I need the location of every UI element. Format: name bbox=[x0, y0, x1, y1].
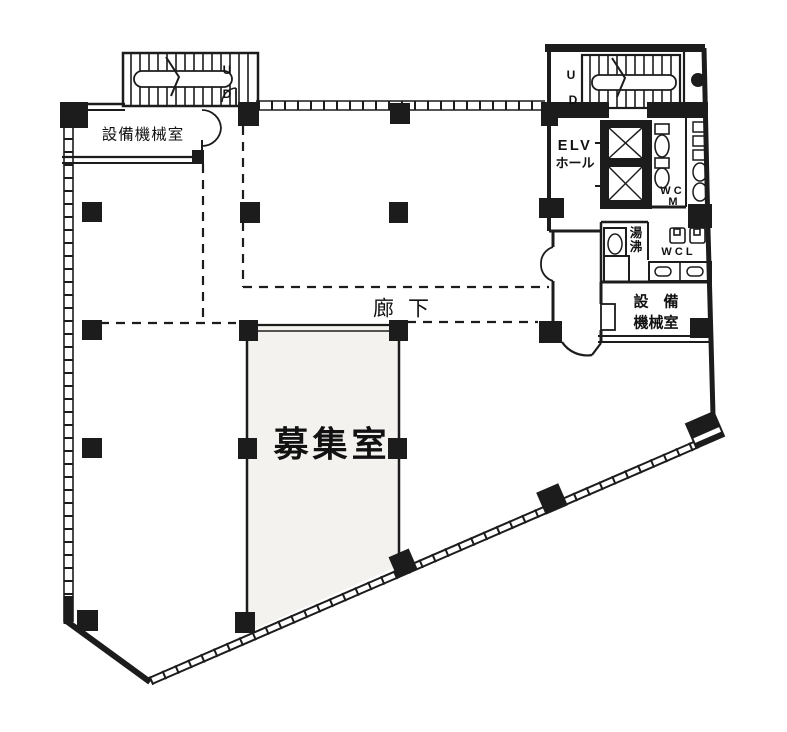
stair-top-right bbox=[552, 52, 708, 118]
column bbox=[235, 612, 255, 633]
stair-rail bbox=[592, 75, 676, 90]
stair-tl-down-label: D bbox=[223, 87, 232, 101]
column bbox=[539, 198, 564, 218]
floor-plan: U D 設備機械室 U D bbox=[0, 0, 787, 732]
toilet-stall-icon bbox=[690, 228, 705, 243]
wc-men bbox=[652, 118, 712, 228]
column bbox=[539, 321, 562, 343]
elv-hall-label-1: ELV bbox=[558, 138, 593, 154]
door-opening bbox=[601, 304, 615, 330]
equipment-room-r-label-1: 設 備 bbox=[633, 293, 678, 311]
counter bbox=[604, 256, 629, 282]
wc-ladies-label: W C L bbox=[661, 246, 692, 258]
urinal-icon bbox=[655, 158, 669, 188]
wc-men-label-2: M bbox=[668, 196, 677, 208]
urinal-icon bbox=[655, 124, 669, 157]
room-equipment-right bbox=[598, 282, 712, 342]
window-ticks-diagonal bbox=[151, 444, 698, 681]
elevator-shafts bbox=[595, 120, 652, 209]
elv-hall-label-2: ホール bbox=[555, 156, 594, 171]
column bbox=[82, 320, 102, 340]
column bbox=[389, 202, 408, 223]
column bbox=[238, 102, 259, 126]
double-door-swing bbox=[541, 247, 553, 281]
column bbox=[390, 103, 410, 124]
corridor-entry bbox=[539, 231, 601, 355]
column bbox=[82, 202, 102, 222]
wall-top-right-block bbox=[545, 44, 705, 52]
equipment-room-r-label-2: 機械室 bbox=[633, 314, 678, 332]
pipe-shaft-icon bbox=[691, 73, 705, 87]
equipment-room-tl-label: 設備機械室 bbox=[102, 126, 185, 144]
column bbox=[77, 610, 98, 631]
stair-top-left bbox=[123, 53, 258, 106]
stair-rail bbox=[134, 71, 232, 87]
toilet-stall-icon bbox=[670, 228, 685, 243]
corridor-label: 廊下 bbox=[373, 298, 443, 321]
stair-tr-down-label: D bbox=[569, 93, 578, 107]
recruit-room-label: 募集室 bbox=[272, 425, 390, 465]
column bbox=[240, 202, 260, 223]
sink-icon bbox=[604, 228, 626, 256]
wall-block bbox=[552, 102, 609, 118]
wall-block bbox=[688, 204, 712, 228]
column bbox=[541, 102, 558, 126]
column bbox=[388, 438, 407, 459]
wall-block bbox=[647, 102, 708, 118]
floor-plan-drawing: U D 設備機械室 U D bbox=[0, 0, 787, 732]
hot-water-label-2: 沸 bbox=[630, 239, 643, 254]
wall-block bbox=[192, 150, 204, 164]
hot-water-label-1: 湯 bbox=[630, 225, 643, 240]
stair-tr-up-label: U bbox=[567, 68, 576, 82]
column bbox=[82, 438, 102, 458]
double-door-swing-top bbox=[202, 110, 221, 128]
column-rotated bbox=[536, 483, 568, 515]
tenant-boundary-dashes bbox=[84, 126, 549, 323]
door-swing bbox=[562, 342, 592, 355]
sink-icon bbox=[655, 267, 671, 276]
sink-icon bbox=[687, 267, 703, 276]
stair-tl-up-label: U bbox=[223, 63, 232, 77]
double-door-swing-bottom bbox=[202, 128, 221, 146]
wall-block bbox=[690, 318, 712, 338]
